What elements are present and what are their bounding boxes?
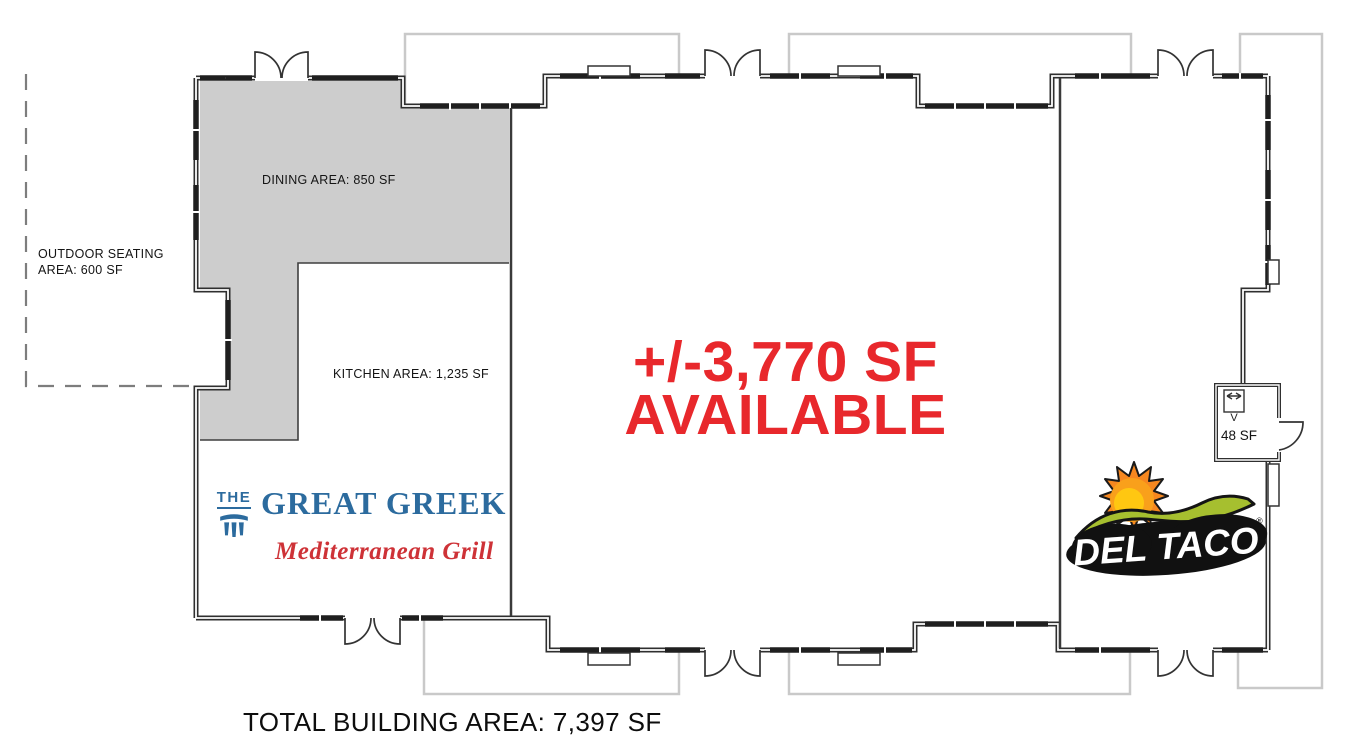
del-taco-logo: DEL TACO ® bbox=[1060, 456, 1272, 580]
canopy-right-side bbox=[1238, 34, 1322, 688]
outdoor-seating-label-line1: OUTDOOR SEATING bbox=[38, 246, 164, 262]
available-space-label: +/-3,770 SF AVAILABLE bbox=[511, 336, 1060, 442]
door-great-greek-bottom bbox=[345, 618, 400, 644]
utility-fixture bbox=[1224, 390, 1244, 412]
outdoor-seating-label: OUTDOOR SEATING AREA: 600 SF bbox=[38, 246, 164, 278]
available-sf-text: +/-3,770 SF bbox=[511, 336, 1060, 389]
total-building-area-label: TOTAL BUILDING AREA: 7,397 SF bbox=[243, 707, 662, 738]
door-utility-room bbox=[1279, 422, 1303, 450]
utility-marker: V bbox=[1230, 412, 1238, 424]
canopy-bottom-left bbox=[424, 620, 679, 694]
great-greek-logo: THE GREAT GREEK Mediterranean Grill bbox=[211, 484, 516, 566]
canopy-top-left bbox=[405, 34, 679, 104]
floor-plan: V OUTDOOR SEATING AREA: 600 SF DINING AR… bbox=[0, 0, 1370, 750]
door-del-taco-bottom bbox=[1158, 650, 1213, 676]
window-sill-right-1 bbox=[1268, 260, 1279, 284]
outdoor-seating-boundary bbox=[26, 74, 190, 386]
registered-mark: ® bbox=[1256, 516, 1263, 526]
available-text: AVAILABLE bbox=[511, 389, 1060, 442]
dining-area-label: DINING AREA: 850 SF bbox=[262, 172, 396, 188]
great-greek-the: THE bbox=[217, 490, 252, 509]
great-greek-tagline: Mediterranean Grill bbox=[275, 538, 516, 566]
door-available-top bbox=[705, 50, 760, 76]
great-greek-name: GREAT GREEK bbox=[261, 484, 506, 522]
del-taco-logo-art: DEL TACO ® bbox=[1060, 456, 1272, 580]
window-sill-bottom-1 bbox=[588, 653, 630, 665]
window-sill-bottom-2 bbox=[838, 653, 880, 665]
dining-area-fill bbox=[200, 81, 509, 440]
utility-room-48sf: V bbox=[1216, 385, 1303, 460]
kitchen-area-label: KITCHEN AREA: 1,235 SF bbox=[333, 366, 489, 382]
utility-dimension-arrow bbox=[1227, 393, 1241, 399]
door-available-bottom bbox=[705, 650, 760, 676]
utility-room-area-label: 48 SF bbox=[1221, 428, 1257, 443]
outdoor-seating-label-line2: AREA: 600 SF bbox=[38, 262, 164, 278]
window-sill-top-1 bbox=[588, 66, 630, 76]
door-del-taco-top bbox=[1158, 50, 1213, 76]
door-great-greek-top bbox=[255, 52, 308, 78]
window-sill-top-2 bbox=[838, 66, 880, 76]
greek-column-icon bbox=[217, 511, 251, 537]
